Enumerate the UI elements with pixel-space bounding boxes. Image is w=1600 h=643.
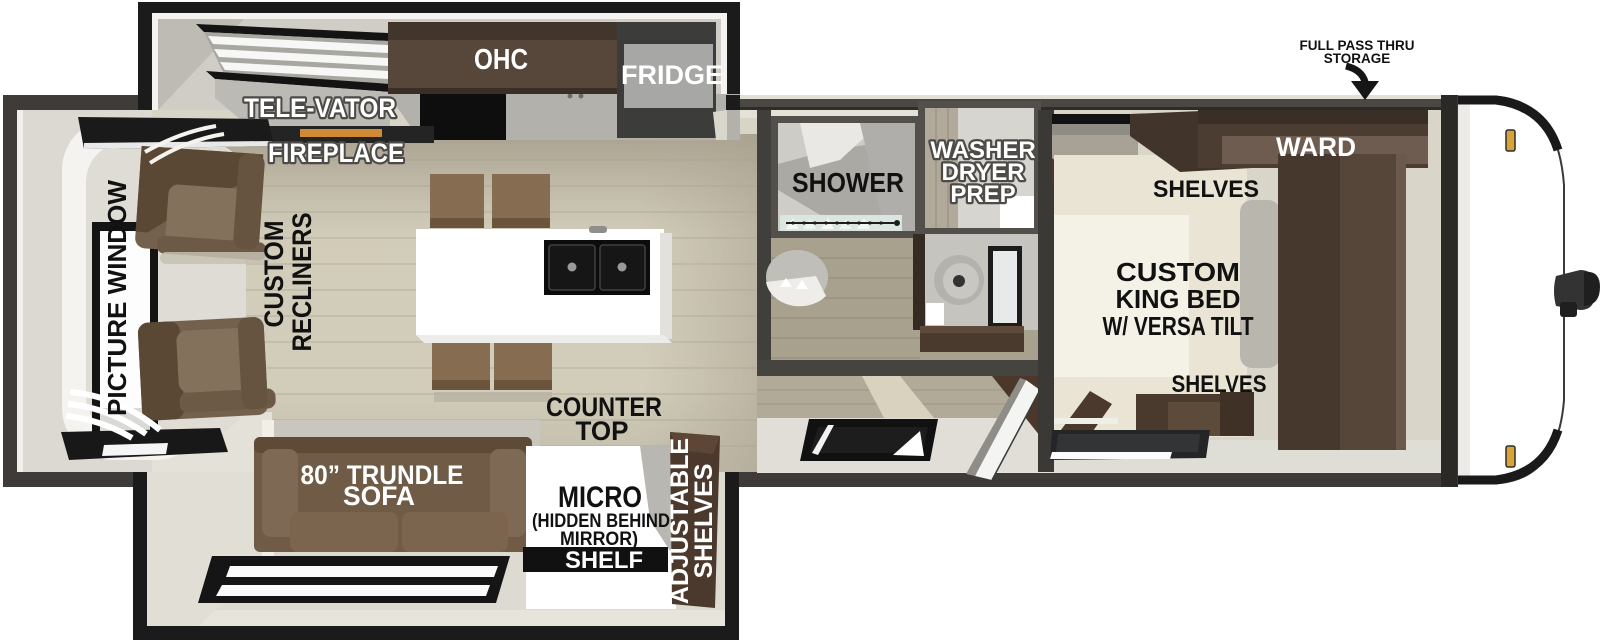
svg-text:FIREPLACE: FIREPLACE: [268, 138, 404, 168]
svg-text:TELE-VATOR: TELE-VATOR: [244, 93, 396, 123]
svg-text:TOP: TOP: [576, 416, 629, 446]
svg-text:SHELVES: SHELVES: [690, 464, 718, 579]
svg-text:MICRO: MICRO: [558, 481, 642, 514]
svg-text:PICTURE WINDOW: PICTURE WINDOW: [102, 180, 132, 416]
svg-text:WARD: WARD: [1276, 132, 1356, 162]
svg-text:OHC: OHC: [474, 44, 528, 76]
svg-text:SHOWER: SHOWER: [792, 167, 904, 198]
svg-text:CUSTOM: CUSTOM: [1116, 257, 1240, 287]
svg-text:SHELVES: SHELVES: [1153, 176, 1259, 203]
svg-text:KING BED: KING BED: [1116, 284, 1241, 314]
svg-text:PREP: PREP: [950, 181, 1015, 208]
svg-text:RECLINERS: RECLINERS: [287, 213, 317, 352]
svg-text:SOFA: SOFA: [343, 481, 415, 511]
svg-text:W/ VERSA TILT: W/ VERSA TILT: [1103, 311, 1254, 341]
svg-text:FRIDGE: FRIDGE: [621, 60, 723, 90]
svg-text:SHELF: SHELF: [565, 547, 643, 574]
svg-text:SHELVES: SHELVES: [1172, 371, 1267, 398]
svg-text:STORAGE: STORAGE: [1324, 51, 1391, 66]
svg-text:CUSTOM: CUSTOM: [259, 221, 289, 328]
